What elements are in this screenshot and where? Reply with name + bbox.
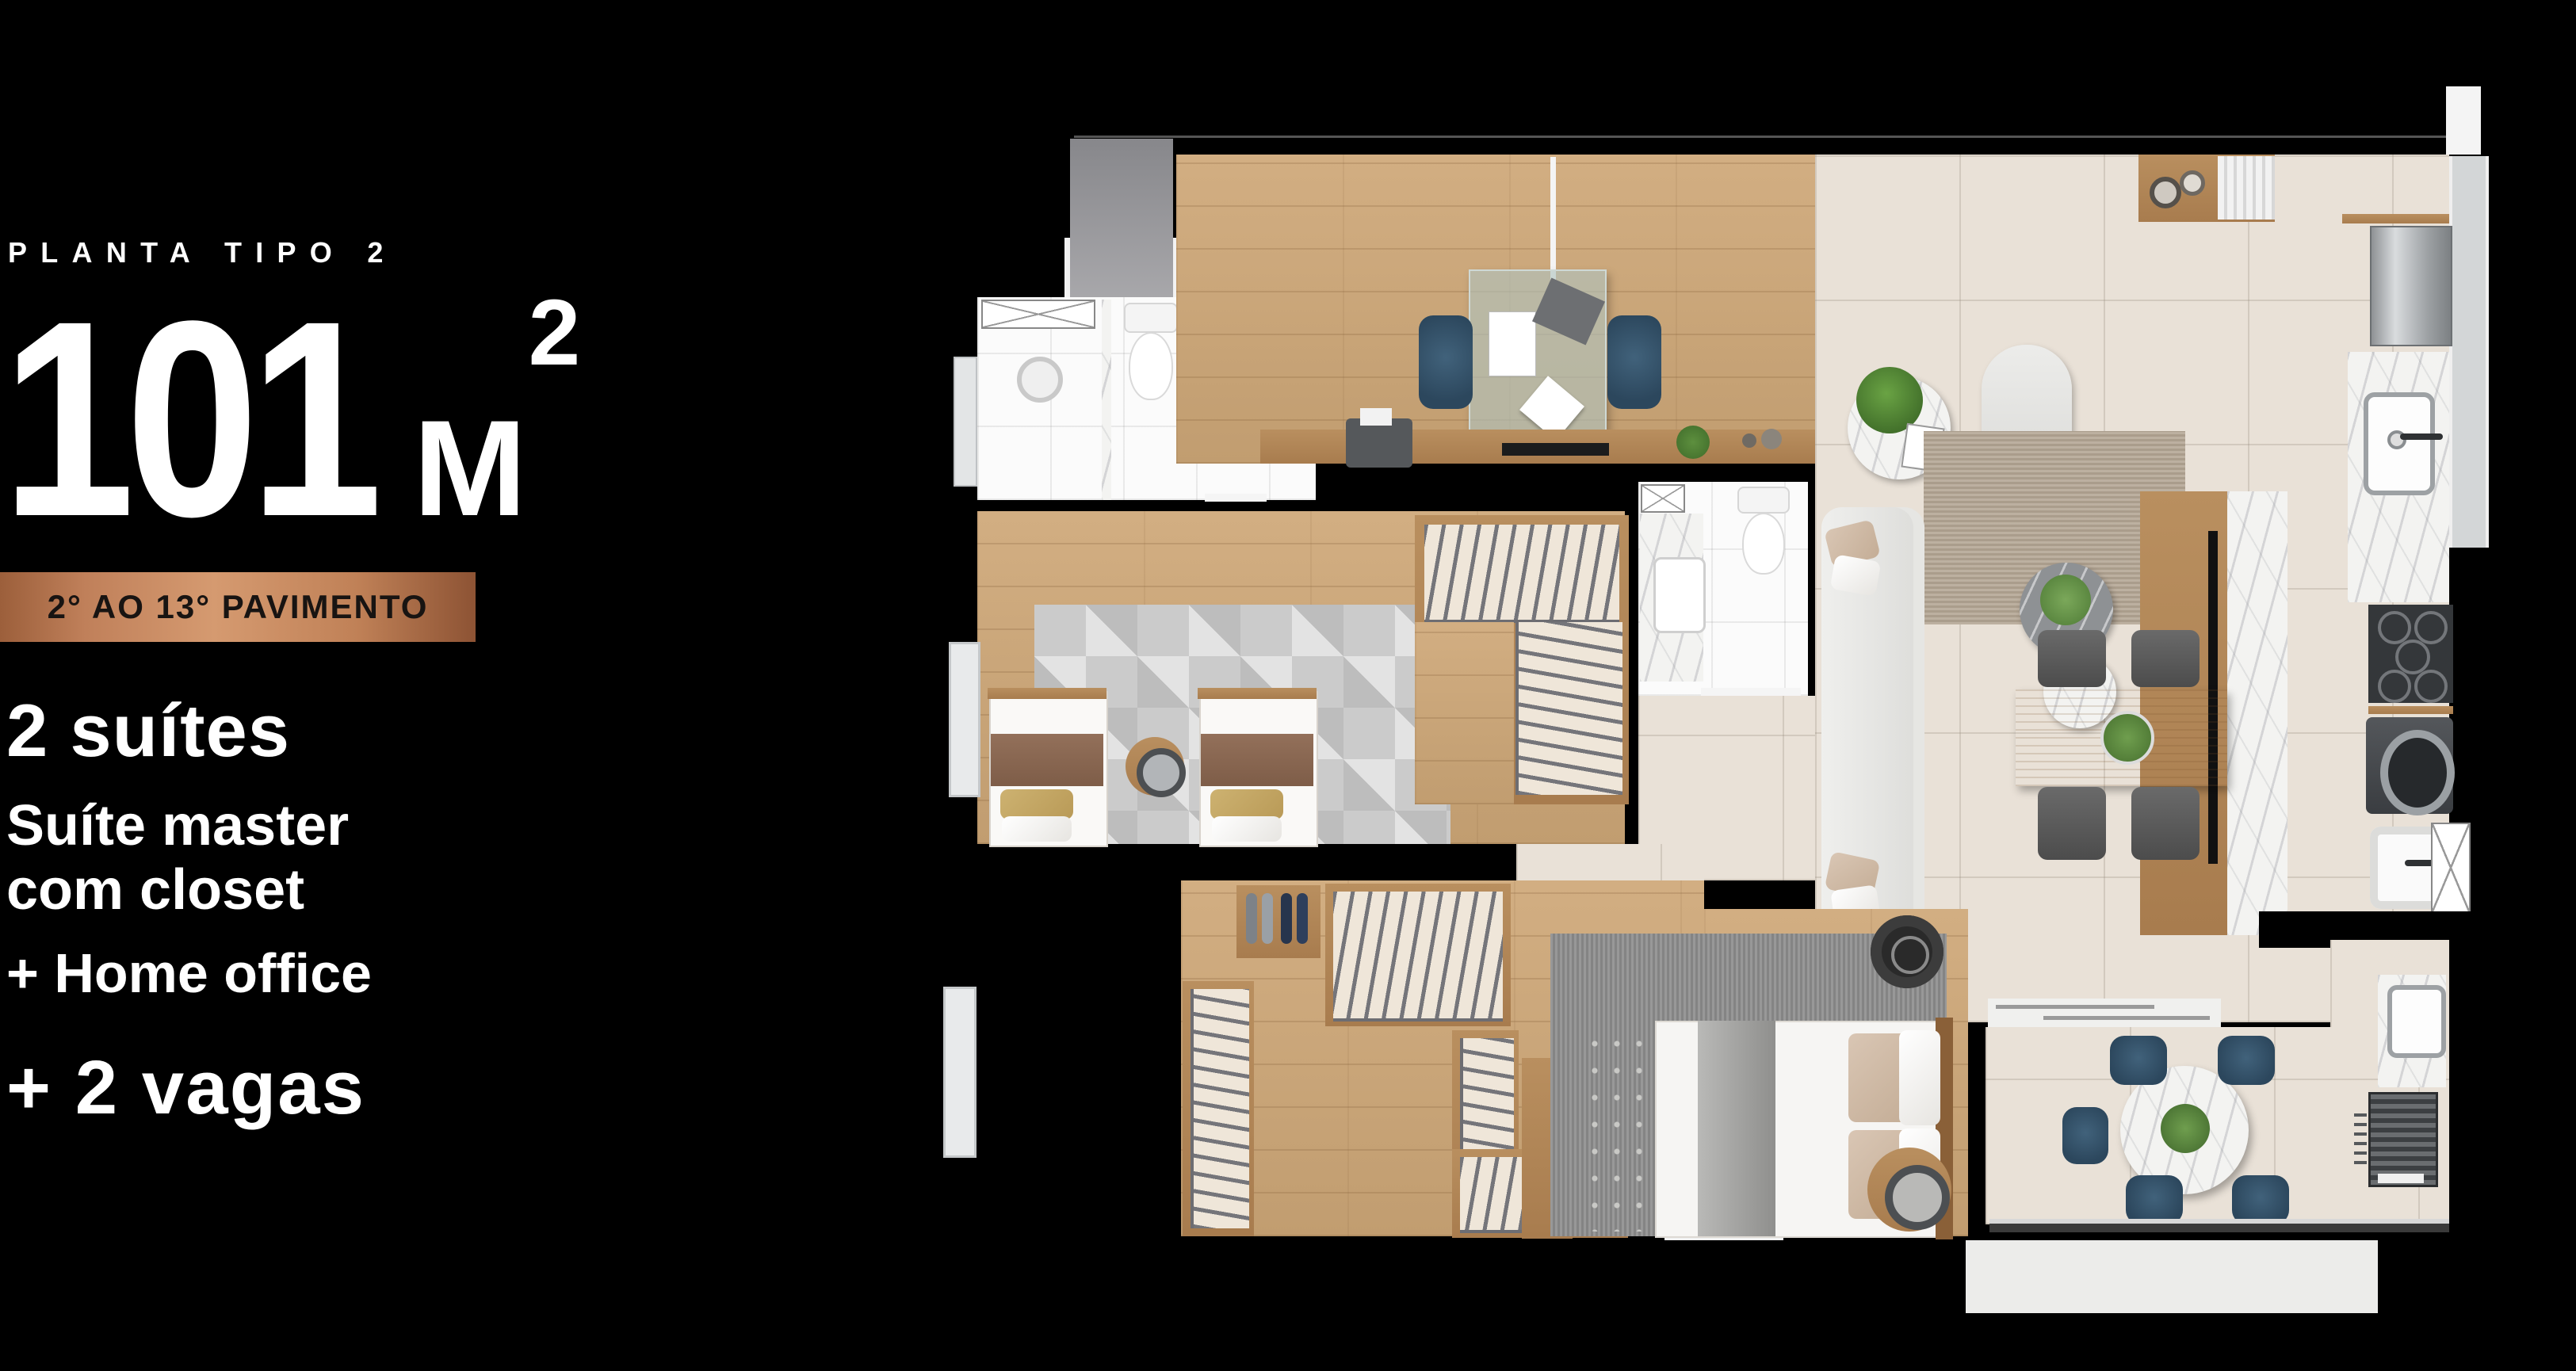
master-closet-top — [1325, 884, 1511, 1026]
feature-suites: 2 suítes — [6, 688, 290, 773]
kitchen-island — [2227, 491, 2287, 935]
table-spoke-detail — [1891, 936, 1929, 974]
floor-plan — [912, 67, 2489, 1371]
shower-box-icon — [981, 300, 1095, 329]
vase2-icon — [1761, 429, 1782, 449]
bed-throw — [1698, 1021, 1775, 1236]
terrace-chair-icon — [2126, 1175, 2183, 1224]
feature-master-line1: Suíte master — [6, 794, 349, 858]
terrace-door-threshold — [1988, 999, 2221, 1027]
feature-home-office: + Home office — [6, 941, 372, 1005]
grill-icon — [2368, 1092, 2438, 1187]
area-superscript: 2 — [529, 279, 581, 387]
cooktop-icon — [2368, 605, 2453, 703]
terrace-plant-icon — [2161, 1104, 2210, 1153]
bed-footboard — [988, 688, 1106, 699]
shoe-rack-icon — [1236, 885, 1320, 958]
suite-2-toilet-bowl — [1742, 513, 1785, 575]
suite-2-sink-icon — [1653, 557, 1706, 633]
feature-parking: + 2 vagas — [6, 1044, 365, 1132]
shower-glass-door — [954, 357, 977, 487]
decor-bowl-2-icon — [2180, 170, 2205, 196]
bed-pillow — [1000, 789, 1073, 819]
office-plant-icon — [1676, 426, 1710, 459]
printer-paper — [1360, 408, 1392, 426]
terrace-chair-icon — [2062, 1107, 2108, 1164]
suite-2-closet-rail-top — [1424, 525, 1619, 623]
left-panel: PLANTA TIPO 2 101M2 2° AO 13° PAVIMENTO … — [0, 0, 872, 1371]
door-track — [1996, 1005, 2154, 1009]
door-track — [2043, 1016, 2210, 1020]
bed-pillow-white — [1899, 1030, 1940, 1125]
toilet-bowl — [1129, 332, 1173, 400]
feature-master-closet: Suíte master com closet — [6, 794, 349, 923]
office-chair-left-icon — [1419, 315, 1473, 409]
shoes-icon — [1281, 893, 1292, 944]
terrace-chair-icon — [2218, 1036, 2275, 1085]
fridge-icon — [2370, 226, 2452, 346]
toilet-icon — [1124, 303, 1178, 333]
shoes-icon — [1297, 893, 1308, 944]
wall-top-edge — [1074, 136, 2461, 138]
shower-divider — [1102, 300, 1111, 500]
shoes-icon — [1246, 893, 1257, 944]
skewers-icon — [2354, 1107, 2367, 1164]
burner-icon — [2414, 611, 2448, 644]
washer-icon — [2366, 717, 2453, 814]
vase-icon — [1742, 433, 1756, 448]
terrace-chair-icon — [2110, 1036, 2167, 1085]
decor-bowl-icon — [2150, 177, 2181, 208]
single-bed-icon — [989, 691, 1108, 847]
curtain-roll-icon — [2218, 156, 2275, 220]
sofa-pillow — [1830, 554, 1882, 596]
bed-pillow — [1210, 789, 1283, 819]
area-figure: 101M2 — [2, 279, 580, 558]
terrace-sink-icon — [2387, 985, 2446, 1058]
bench-icon — [1584, 1030, 1652, 1232]
dining-chair-icon — [2038, 787, 2106, 860]
dining-chair-icon — [2131, 787, 2200, 860]
washer-door — [2380, 730, 2455, 815]
terrace-chair-icon — [2232, 1175, 2289, 1224]
railing-bar — [1989, 1224, 2449, 1232]
printer-icon — [1346, 418, 1412, 468]
dining-chair-icon — [2131, 630, 2200, 687]
round-table-wood-ring — [1885, 1165, 1950, 1230]
suite-2-toilet-icon — [1737, 487, 1790, 514]
floor-range-label: 2° AO 13° PAVIMENTO — [48, 588, 429, 626]
laptop-icon — [1489, 311, 1536, 376]
bed-pillow-white — [1002, 816, 1072, 842]
dining-chair-icon — [2038, 630, 2106, 687]
wardrobe-rail-icon — [1191, 989, 1249, 1228]
round-table-dark-icon — [1871, 915, 1943, 988]
suite-2-bathroom-door — [1701, 688, 1801, 696]
burner-icon — [2378, 611, 2411, 644]
facade-window-top — [2446, 86, 2481, 155]
facade-window-band — [2449, 156, 2489, 548]
area-unit: M — [413, 390, 526, 547]
coffee-table-flowers-icon — [2040, 575, 2091, 625]
nightstand-ring — [1137, 748, 1186, 797]
kitchen-shelf-2 — [2368, 706, 2453, 714]
shoes-icon — [1262, 893, 1273, 944]
burner-icon — [2414, 670, 2448, 703]
balcony-edge — [1966, 1240, 2378, 1313]
tv-console-icon — [1502, 443, 1609, 456]
burner-icon — [2378, 670, 2411, 703]
duct-shaft-icon — [2431, 823, 2471, 913]
feature-master-line2: com closet — [6, 858, 349, 922]
floor-range-banner: 2° AO 13° PAVIMENTO — [0, 572, 476, 642]
kitchen-faucet-icon — [2400, 433, 2443, 440]
kitchen-shelf — [2342, 214, 2449, 223]
master-closet-left — [1183, 981, 1254, 1236]
master-window — [943, 987, 977, 1158]
bed-footboard — [1198, 688, 1317, 699]
suite-2-closet-floor-gap — [1415, 622, 1514, 804]
bed-blanket — [1201, 734, 1313, 786]
area-value: 101 — [2, 279, 373, 558]
bathroom-1-door — [1205, 494, 1267, 502]
wardrobe-rail-icon — [1333, 892, 1503, 1022]
centerpiece-plant-icon — [2100, 711, 2154, 765]
sofa-icon — [1821, 507, 1924, 935]
suite-2-shower-box-icon — [1641, 484, 1685, 513]
suite-2-window — [949, 642, 980, 797]
burner-icon — [2395, 640, 2430, 674]
suite-2-closet-rail-right — [1515, 622, 1622, 795]
office-chair-right-icon — [1607, 315, 1661, 409]
bed-pillow-white — [1212, 816, 1282, 842]
shower-drain-icon — [1017, 357, 1063, 403]
bed-blanket — [991, 734, 1103, 786]
floor-plan-advertisement: PLANTA TIPO 2 101M2 2° AO 13° PAVIMENTO … — [0, 0, 2576, 1371]
grill-label — [2378, 1174, 2424, 1183]
single-bed-2-icon — [1199, 691, 1318, 847]
